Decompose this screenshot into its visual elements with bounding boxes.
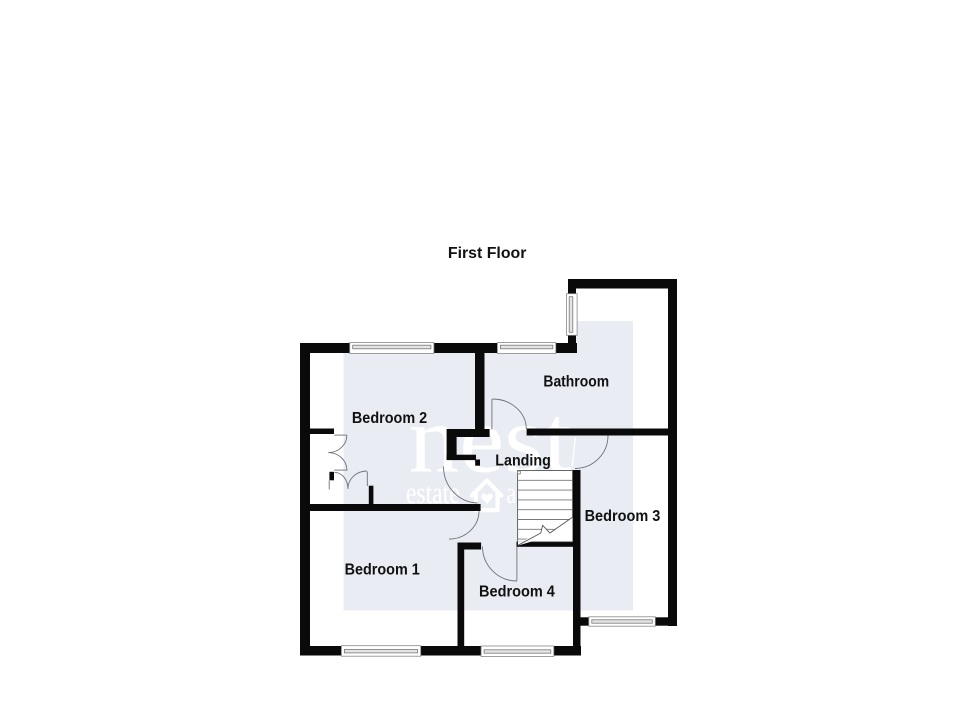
- svg-text:First Floor: First Floor: [448, 245, 527, 262]
- svg-text:Bedroom 1: Bedroom 1: [345, 562, 421, 579]
- svg-text:Bedroom 3: Bedroom 3: [585, 508, 661, 525]
- svg-text:Landing: Landing: [495, 452, 551, 469]
- svg-text:Bathroom: Bathroom: [543, 374, 609, 391]
- svg-text:Bedroom 4: Bedroom 4: [479, 584, 555, 601]
- svg-text:Bedroom 2: Bedroom 2: [352, 410, 427, 427]
